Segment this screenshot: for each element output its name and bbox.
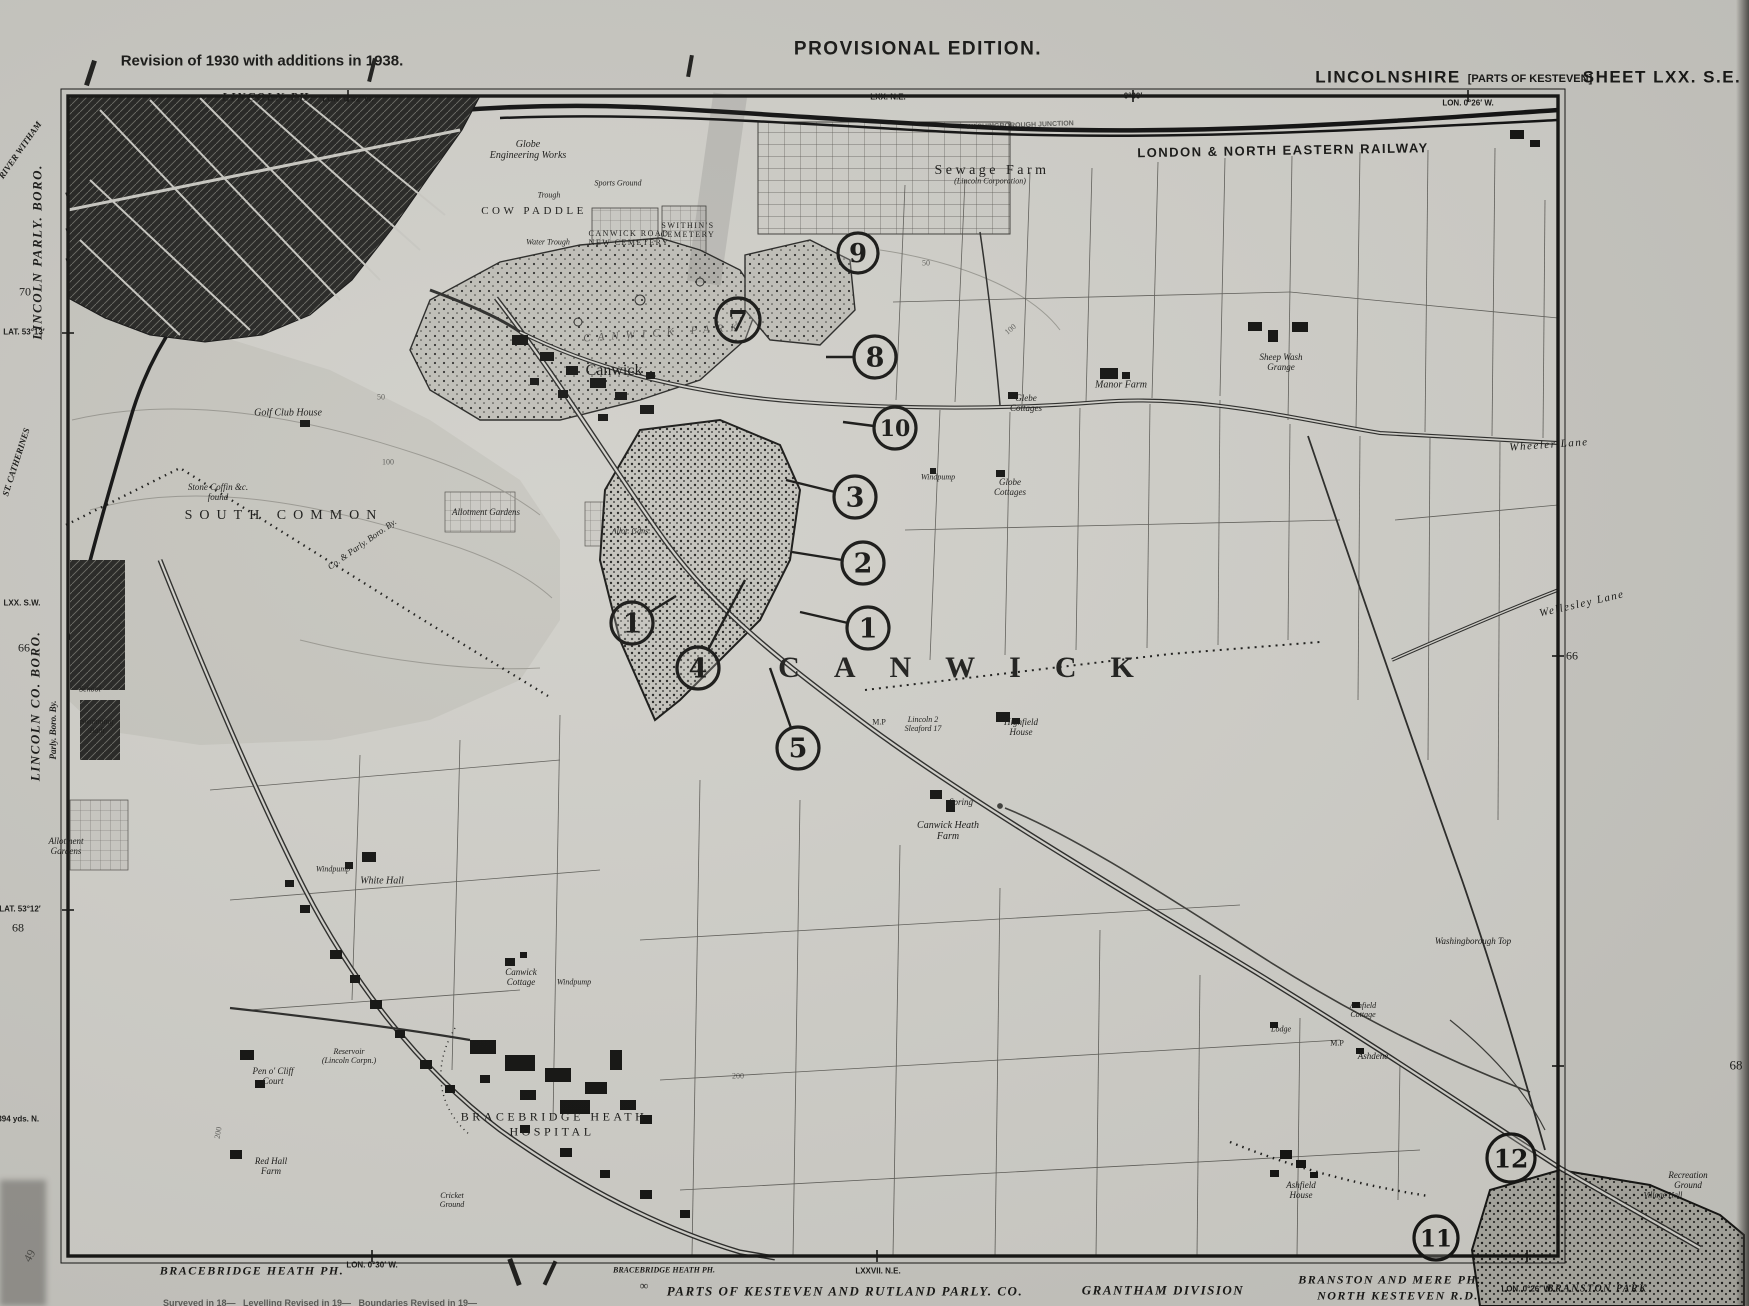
annotation-number: 4 [689,654,708,685]
annotation-number: 7 [728,304,748,338]
annotation-number: 10 [880,416,911,442]
annotation-number: 8 [866,343,885,374]
annotation-number: 3 [846,483,865,514]
map-sheet: 798103211451112 Revision of 1930 with ad… [0,0,1749,1306]
scan-edge-shadow [1736,0,1749,1306]
annotation-number: 12 [1494,1145,1529,1174]
allotments-area [70,800,128,870]
sewage-farm-area [758,122,1010,234]
map-linework: 798103211451112 [0,0,1749,1306]
annotation-number: 2 [854,549,873,580]
annotation-number: 9 [849,239,867,269]
annotation-number: 11 [1420,1226,1452,1253]
annotation-number: 1 [623,609,642,640]
branston-park-area [1472,1170,1744,1306]
allotments-area [445,492,515,532]
annotation-number: 1 [859,614,878,645]
annotation-number: 5 [789,734,808,765]
